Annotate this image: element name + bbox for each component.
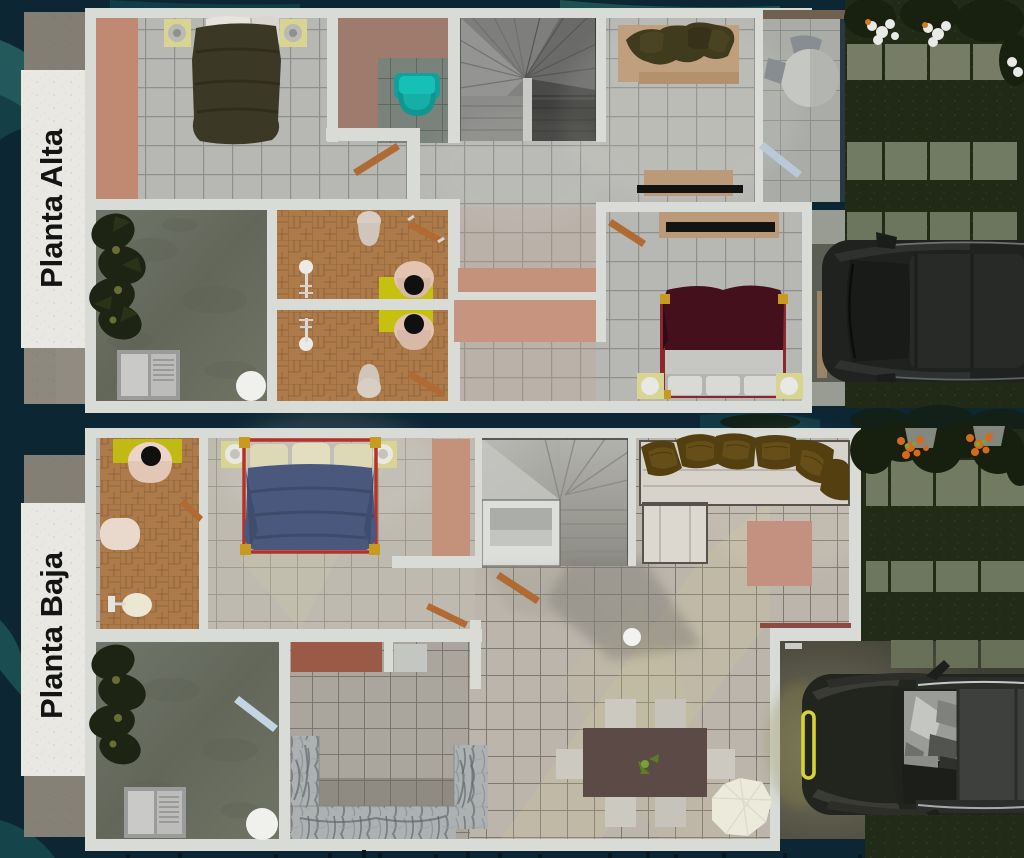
svg-text:Planta Baja: Planta Baja	[34, 551, 69, 719]
svg-text:Planta Alta: Planta Alta	[34, 128, 69, 288]
